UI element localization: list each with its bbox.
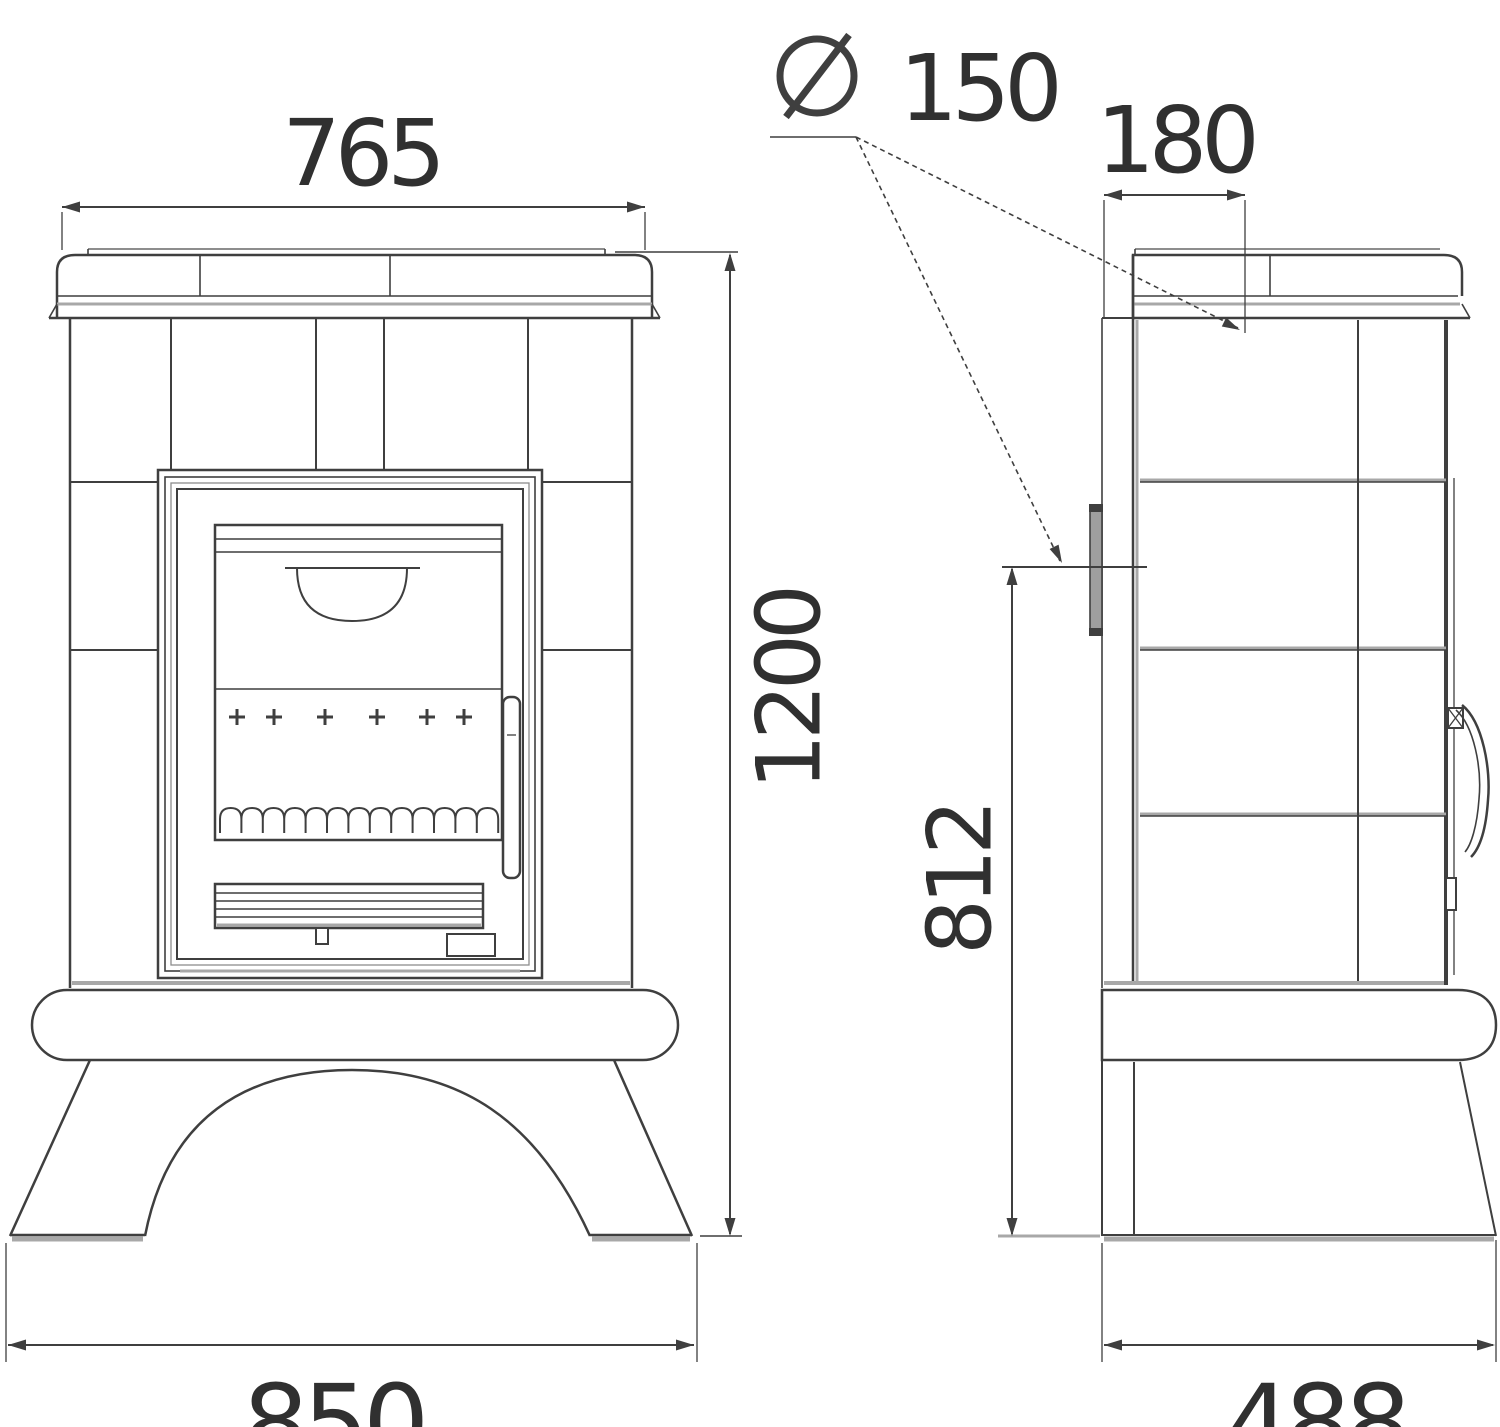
side-plinth (1102, 990, 1496, 1060)
side-base (1102, 1060, 1496, 1239)
side-door-hinge (1446, 878, 1456, 910)
grill-knob (316, 928, 328, 944)
dim-overall-height-label: 1200 (738, 589, 841, 790)
door-vent-grill (215, 884, 483, 944)
front-plinth (32, 990, 678, 1060)
dim-base-width-label: 850 (243, 1362, 424, 1427)
dimension-drawing: 765 150 180 1200 (0, 0, 1500, 1427)
side-door-handle (1446, 705, 1489, 910)
door-handle (503, 697, 520, 878)
front-door (158, 470, 542, 978)
door-flame-wave (220, 808, 498, 833)
diameter-symbol-icon (780, 35, 854, 117)
front-cap (49, 255, 660, 318)
base-arch-opening (145, 1070, 590, 1236)
front-body (70, 318, 632, 988)
dim-rear-flue-height-label: 812 (909, 805, 1012, 955)
dim-flue-diameter-label: 150 (899, 35, 1057, 142)
door-glass (215, 525, 502, 840)
dim-base-depth-label: 488 (1225, 1362, 1406, 1427)
side-cap (1133, 255, 1470, 318)
dim-overall-height: 1200 (615, 252, 841, 1236)
ash-lip (447, 934, 495, 956)
rear-flue-collar (1089, 504, 1103, 636)
dim-base-width: 850 (6, 1243, 697, 1427)
side-body (1102, 255, 1454, 988)
front-base (10, 1060, 692, 1239)
dim-front-top-width-label: 765 (282, 100, 440, 207)
door-arch (285, 568, 420, 621)
door-plus-marks-row (229, 709, 472, 725)
drawing-canvas: 765 150 180 1200 (0, 0, 1500, 1427)
dim-top-flue-offset-label: 180 (1096, 87, 1254, 194)
dim-base-depth: 488 (1102, 1240, 1496, 1427)
side-view (1089, 249, 1496, 1239)
dim-front-top-width: 765 (62, 100, 645, 250)
dim-rear-flue-height: 812 (909, 567, 1148, 1236)
front-view (10, 249, 692, 1239)
